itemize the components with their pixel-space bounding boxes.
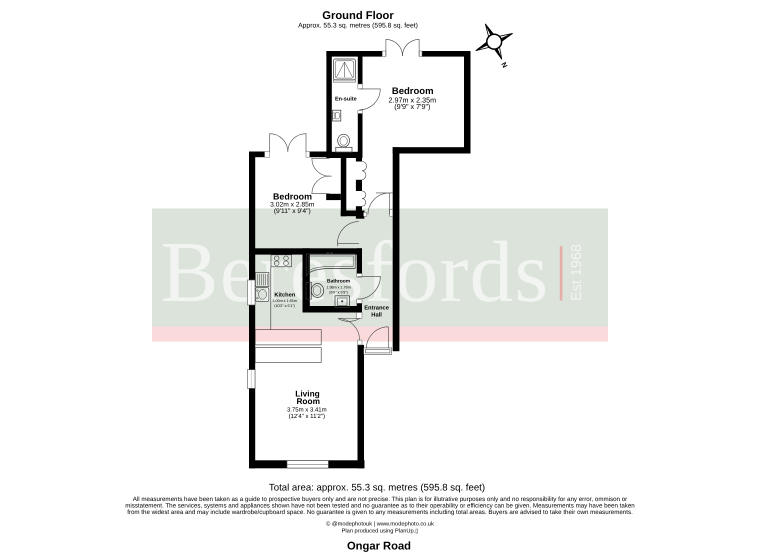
- svg-text:Entrance: Entrance: [364, 306, 390, 312]
- svg-text:Ongar Road: Ongar Road: [347, 541, 411, 552]
- svg-text:© @modephotouk | www.modephoto: © @modephotouk | www.modephoto.co.uk: [326, 521, 434, 528]
- svg-text:Hall: Hall: [371, 311, 382, 318]
- svg-text:Approx. 55.3 sq. metres (595.8: Approx. 55.3 sq. metres (595.8 sq. feet): [298, 22, 418, 29]
- svg-text:3.75m x 3.41m: 3.75m x 3.41m: [287, 406, 327, 413]
- svg-text:Total area: approx. 55.3 sq. m: Total area: approx. 55.3 sq. metres (595…: [269, 483, 485, 494]
- svg-text:(9'11" x 9'4"): (9'11" x 9'4"): [274, 208, 311, 215]
- svg-text:(6'6" x 5'9"): (6'6" x 5'9"): [329, 290, 348, 294]
- svg-text:En-suite: En-suite: [335, 96, 357, 102]
- svg-text:(12'4" x 11'2"): (12'4" x 11'2"): [289, 413, 325, 420]
- svg-text:(10'2" x 5'1"): (10'2" x 5'1"): [274, 304, 295, 308]
- svg-text:Ground Floor: Ground Floor: [322, 10, 394, 22]
- svg-text:Bedroom: Bedroom: [273, 191, 312, 201]
- svg-text:(9'9" x 7'9"): (9'9" x 7'9"): [394, 102, 430, 111]
- svg-text:from the widest area and may i: from the widest area and may include war…: [127, 509, 633, 516]
- svg-text:Bathroom: Bathroom: [327, 279, 351, 285]
- svg-text:Room: Room: [296, 396, 320, 406]
- svg-text:Plan produced using PlanUp.▯: Plan produced using PlanUp.▯: [342, 528, 419, 535]
- svg-text:3.09m x 1.55m: 3.09m x 1.55m: [272, 299, 296, 303]
- svg-text:Beresfords: Beresfords: [161, 223, 550, 320]
- svg-text:1.98m x 1.76m: 1.98m x 1.76m: [326, 285, 350, 289]
- svg-text:Kitchen: Kitchen: [274, 292, 295, 299]
- svg-text:Est 1968: Est 1968: [569, 244, 585, 301]
